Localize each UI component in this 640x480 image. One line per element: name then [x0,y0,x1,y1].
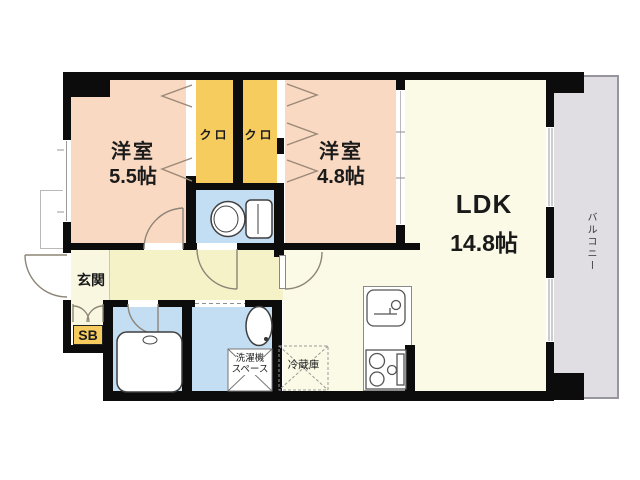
hallway-floor [110,250,283,300]
wall-corner-bottomright [546,373,584,400]
window-ldk-right-2 [546,278,554,342]
ldk-name: LDK [432,189,536,220]
wall-kitchen-pillar [405,345,415,391]
bedroom1-door-opening [144,243,183,250]
bedroom2-ldk-sliding-door [396,90,405,225]
wall-washroom-top [245,300,274,307]
washing-machine-label: 洗濯機 スペース [228,353,272,376]
bathroom-floor [113,307,182,391]
wall-bed2-ldk-top [396,72,405,90]
wall-bath-washroom [182,300,192,391]
washing-machine-label-line1: 洗濯機 [236,353,265,364]
window-ldk-right-1 [546,127,554,207]
wall-washroom-right [272,300,282,391]
closet1-door-strip [186,80,196,176]
wall-hall-top [71,243,420,250]
wall-closet2-mid [277,138,284,154]
entrance-label: 玄関 [72,270,110,290]
toilet-door-opening [197,243,237,250]
refrigerator-label: 冷蔵庫 [279,357,328,372]
bathroom-door-opening [128,300,158,307]
window-bedroom1-left [63,140,71,222]
wall-top [63,72,554,80]
entrance-door-opening [63,253,71,300]
entrance-porch-outline [40,190,65,249]
washing-machine-label-line2: スペース [232,364,269,375]
entrance-door-arc [25,255,67,297]
wall-bath-left [103,300,113,401]
ldk-size: 14.8帖 [428,224,540,258]
hall-ldk-door-leaf [279,255,286,289]
washroom-sliding-door [195,300,245,307]
closet2-label: クロ [241,126,278,143]
closet2-door-strip [277,80,284,183]
wall-bottom [103,391,554,401]
shoe-box-label: SB [73,327,103,343]
wall-toilet-top [186,183,284,190]
closet1-label: クロ [196,126,233,143]
toilet-floor [196,190,274,243]
washroom-floor [192,307,272,391]
wall-toilet-left [186,190,196,250]
bedroom1-size: 5.5帖 [88,160,178,189]
bedroom2-size: 4.8帖 [296,160,386,189]
balcony-label: バルコニー [583,206,598,278]
wall-bath-top-a [103,300,128,307]
floorplan-canvas: 洋室 5.5帖 クロ クロ 洋室 4.8帖 LDK 14.8帖 玄関 SB バル… [0,0,640,480]
wall-bed2-ldk-bottom [396,225,405,250]
